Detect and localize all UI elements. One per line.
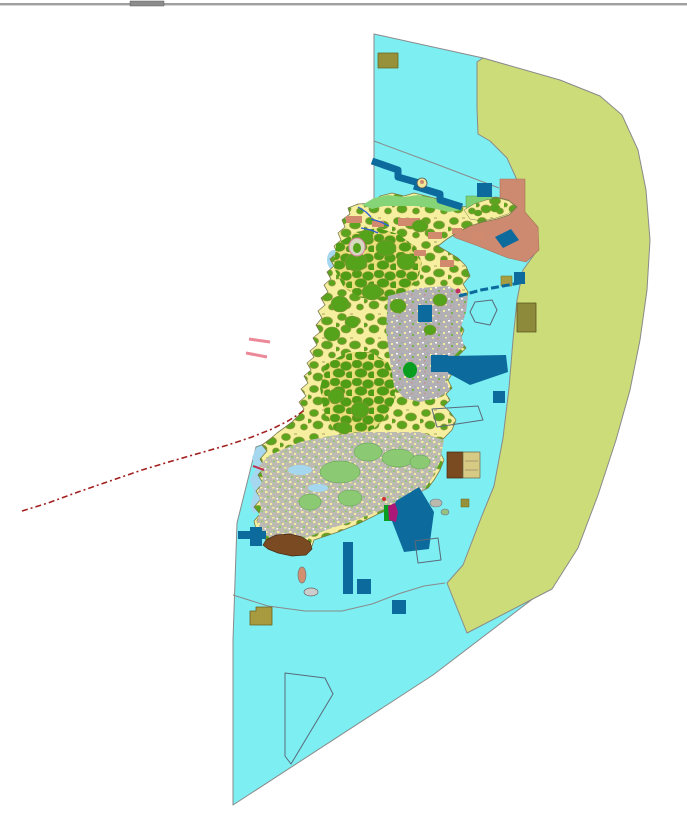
south-harbor-square-a (357, 579, 371, 594)
islet-gray (304, 588, 318, 596)
forest-blob (331, 296, 349, 312)
meadow-patch (354, 443, 382, 461)
meadow-patch (299, 494, 321, 510)
brown-field-se (447, 452, 463, 478)
window-top-line-light (0, 5, 687, 6)
residential-patch (472, 232, 484, 240)
forest-blob (324, 327, 340, 341)
cove-green (353, 243, 361, 253)
harbor-rect-mid (418, 305, 432, 322)
west-quay-stem (250, 527, 262, 546)
residential-patch (414, 250, 426, 256)
islet-yellow-dot (420, 180, 424, 184)
forest-blob (490, 204, 500, 212)
meadow-patch (338, 490, 362, 506)
meadow-patch (320, 461, 360, 483)
landuse-map[interactable] (0, 0, 687, 821)
forest-blob (397, 254, 415, 270)
bright-green-park-b (403, 362, 417, 378)
forest-blob (345, 316, 359, 328)
forest-blob (351, 402, 369, 418)
south-inlet-b (308, 484, 328, 492)
forest-blob (433, 294, 447, 306)
hill-square-north (378, 53, 398, 68)
map-viewport (0, 0, 687, 821)
forest-blob (337, 422, 351, 434)
forest-blob (376, 240, 396, 256)
port-square-east (431, 355, 448, 372)
olive-rect-east (517, 303, 536, 332)
islet-east-a (430, 499, 442, 507)
olive-dot-southeast (461, 499, 469, 507)
islet-salmon (298, 567, 306, 583)
forest-blob (474, 210, 482, 216)
pink-pier-b (246, 353, 267, 357)
meadow-patch (410, 455, 430, 469)
residential-patch (452, 228, 462, 234)
forest-blob (328, 389, 344, 403)
meadow-patch (382, 449, 414, 467)
residential-patch (346, 216, 362, 223)
port-small-rect-east (493, 391, 505, 403)
residential-patch (440, 260, 454, 267)
window-top-line (0, 3, 687, 5)
khaki-field-se (463, 452, 480, 478)
islet-east-b (441, 509, 449, 515)
coast-marker-dot (456, 289, 461, 294)
forest-blob (390, 299, 406, 313)
pink-pier-a (249, 339, 270, 342)
harbor-rect-ne (477, 183, 492, 197)
south-inlet-a (288, 465, 312, 475)
forest-blob (412, 220, 428, 232)
map-feature-layer (0, 1, 687, 805)
red-marker-dot (382, 497, 386, 501)
residential-patch (428, 232, 442, 239)
south-vertical-quay (343, 542, 353, 594)
window-top-handle (130, 1, 164, 6)
south-harbor-square-b (392, 600, 406, 614)
forest-blob (362, 284, 382, 300)
forest-blob (424, 325, 436, 335)
